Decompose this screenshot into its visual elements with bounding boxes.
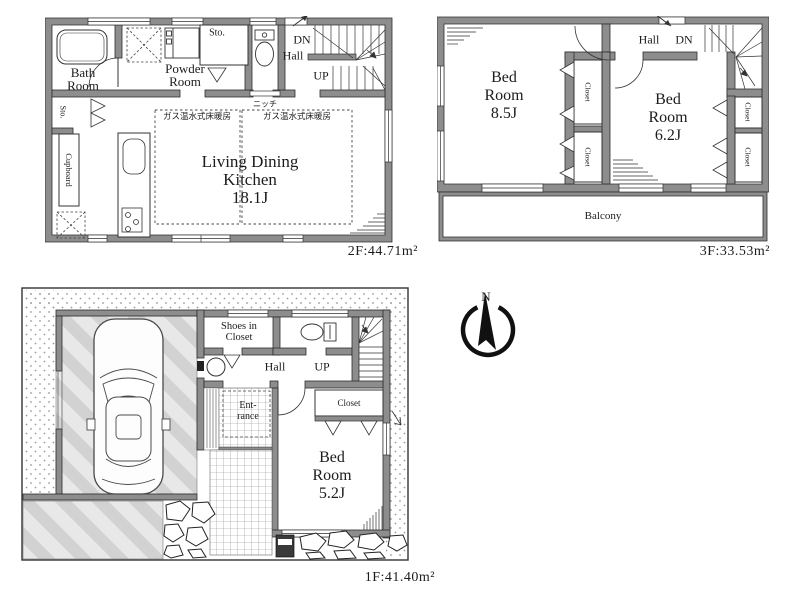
entry-arrow-3f xyxy=(655,16,685,26)
room-label-bed2: BedRoom6.2J xyxy=(648,91,687,145)
label-closet-1f: Closet xyxy=(337,398,360,408)
label-closet-mid-top: Closet xyxy=(584,82,593,101)
toilet-icon-1f xyxy=(301,323,336,341)
hatch-top-left-3f xyxy=(447,28,483,44)
laundry-space-dashed xyxy=(127,28,161,62)
room-label-sto-left: Sto. xyxy=(59,106,68,119)
wall-tick xyxy=(197,361,204,371)
corner-hatch-2f xyxy=(350,214,385,233)
label-closet-right-top: Closet xyxy=(744,102,753,121)
label-dn-3f: DN xyxy=(675,33,692,48)
washer-icon xyxy=(165,28,199,58)
label-niche: ニッチ xyxy=(253,99,277,110)
car-icon xyxy=(87,319,170,494)
entry-arrow-2f xyxy=(285,16,308,26)
label-hall-2f: Hall xyxy=(283,49,304,64)
label-balcony: Balcony xyxy=(585,210,622,222)
toilet-icon-2f xyxy=(255,30,274,66)
kitchen-counter xyxy=(118,133,150,237)
label-dn-2f: DN xyxy=(293,33,310,48)
room-label-ldk: Living DiningKitchen18.1J xyxy=(202,153,299,207)
room-label-powder: PowderRoom xyxy=(165,62,205,88)
bathtub-icon xyxy=(57,30,107,64)
label-up-1f: UP xyxy=(314,360,329,375)
room-label-entrance: Ent-rance xyxy=(237,400,259,422)
niche-box xyxy=(250,91,280,96)
floor-plan-1f xyxy=(20,283,412,569)
fridge-space-dashed xyxy=(57,212,85,238)
room-label-shoes: Shoes inCloset xyxy=(221,321,257,343)
compass-north-label: N xyxy=(481,289,490,305)
label-floor-heating-left: ガス温水式床暖房 xyxy=(163,110,231,122)
label-floor-heating-right: ガス温水式床暖房 xyxy=(263,110,331,122)
driveway-floor xyxy=(23,501,163,559)
hatch-bed2-3f xyxy=(613,160,658,180)
room-label-bath: BathRoom xyxy=(67,66,99,92)
storage-left-doors xyxy=(91,99,105,127)
room-label-bed1: BedRoom8.5J xyxy=(484,69,523,123)
label-hall-1f: Hall xyxy=(265,360,286,375)
area-label-3f: 3F:33.53m² xyxy=(600,244,770,260)
meter-box xyxy=(276,535,294,557)
floor-plan-2f xyxy=(45,16,393,246)
area-label-1f: 1F:41.40m² xyxy=(265,570,435,586)
walkway-tiles xyxy=(210,450,272,555)
bed2-door-arc xyxy=(615,60,643,88)
label-closet-mid-bottom: Closet xyxy=(584,147,593,166)
label-cupboard: Cupboard xyxy=(64,153,74,187)
label-hall-3f: Hall xyxy=(639,33,660,48)
room-label-sto-top: Sto. xyxy=(209,28,225,39)
hall-circle-fixture xyxy=(207,358,225,376)
area-label-2f: 2F:44.71m² xyxy=(248,244,418,260)
room-label-bed-1f: BedRoom5.2J xyxy=(312,449,351,503)
floorplan-sheet: BathRoom PowderRoom Sto. DN Hall UP ニッチ … xyxy=(0,0,800,600)
label-up-2f: UP xyxy=(313,69,328,84)
label-closet-right-bottom: Closet xyxy=(744,147,753,166)
